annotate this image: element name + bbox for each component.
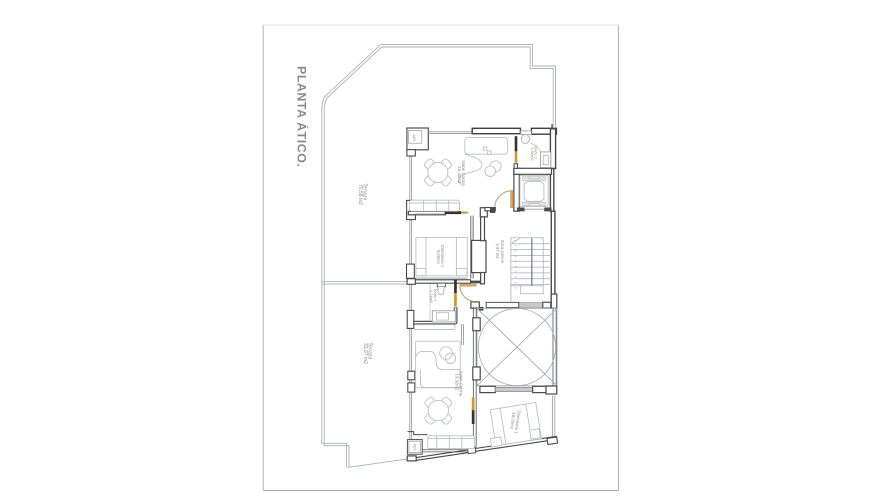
svg-text:70,58 m2: 70,58 m2: [357, 184, 363, 205]
svg-text:1 2 3 4 5 6 7 8 9 0: 1 2 3 4 5 6 7 8 9 0: [514, 240, 518, 290]
svg-text:3,60m2: 3,60m2: [530, 147, 535, 161]
svg-text:16,40m2: 16,40m2: [457, 167, 462, 184]
svg-text:9,05m2: 9,05m2: [436, 250, 441, 264]
svg-text:ACS: ACS: [412, 135, 416, 143]
svg-text:6,97 m2: 6,97 m2: [495, 244, 500, 260]
svg-text:3,74m2: 3,74m2: [429, 290, 434, 304]
svg-text:19,32m2: 19,32m2: [455, 374, 460, 391]
svg-text:33,97 m2: 33,97 m2: [362, 343, 368, 364]
svg-text:ACS: ACS: [413, 444, 417, 452]
svg-text:PLANTA ÁTICO.: PLANTA ÁTICO.: [295, 66, 310, 167]
